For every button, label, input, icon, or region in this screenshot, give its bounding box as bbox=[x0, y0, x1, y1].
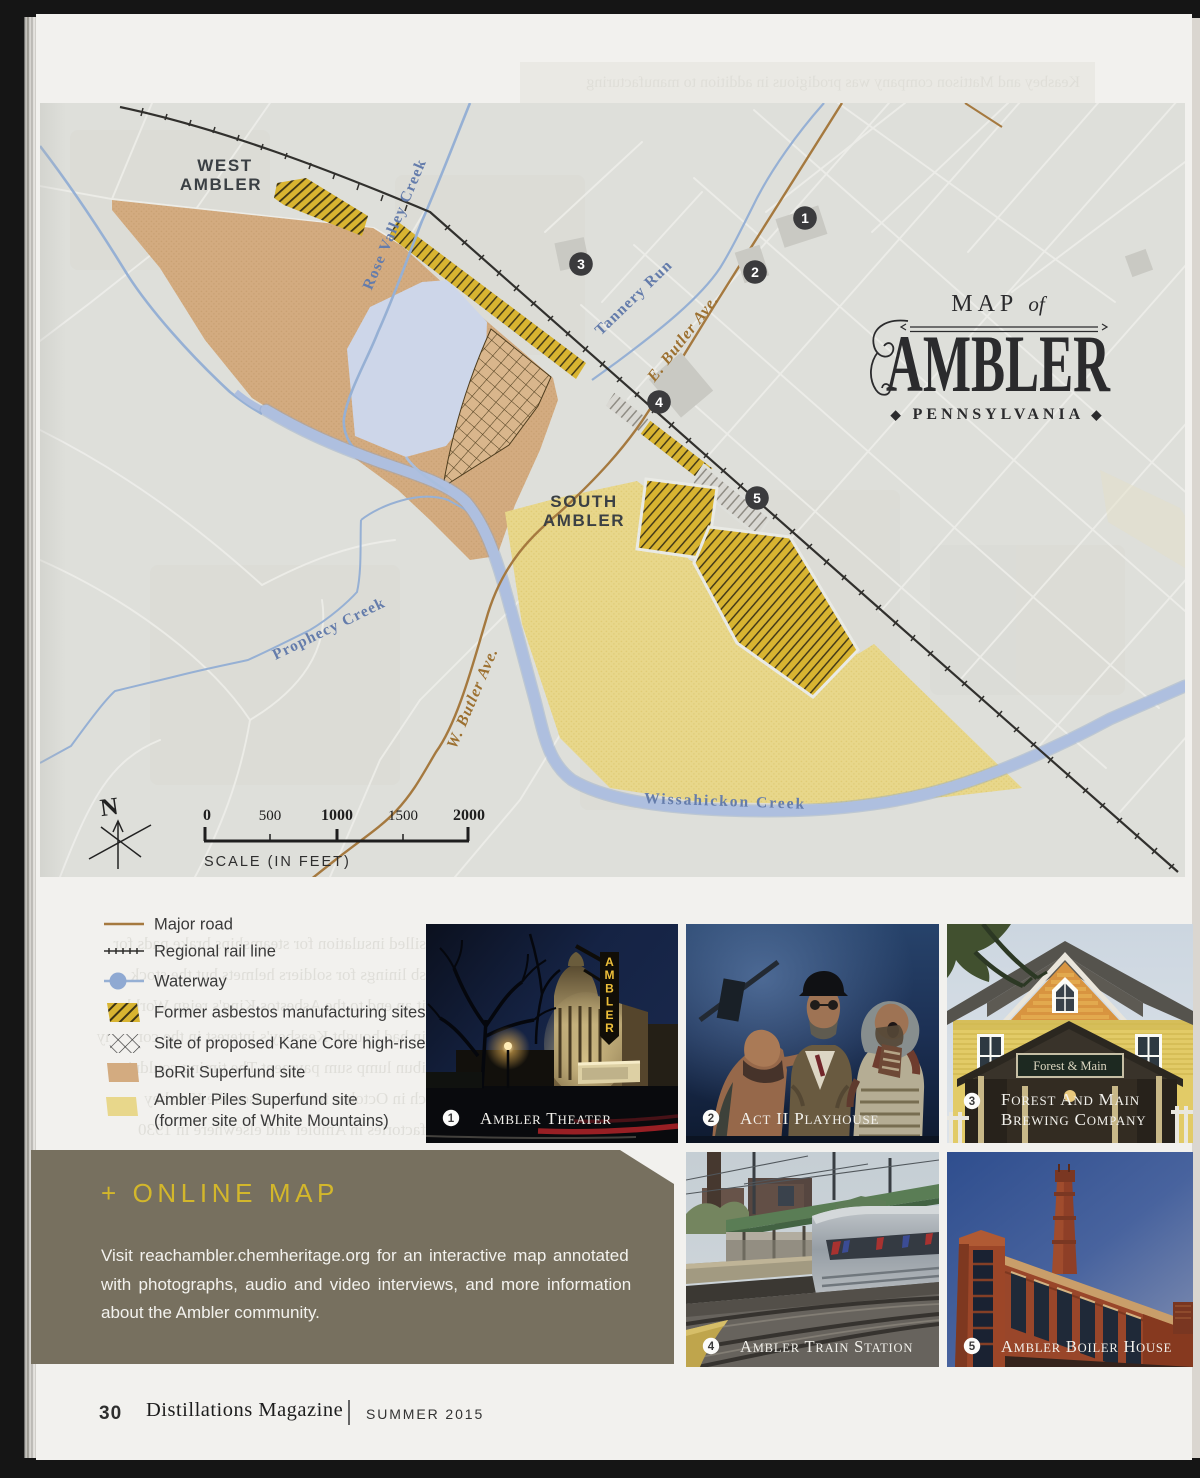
svg-text:◆ PENNSYLVANIA ◆: ◆ PENNSYLVANIA ◆ bbox=[890, 406, 1106, 423]
svg-text:FOREST AND MAIN: FOREST AND MAIN bbox=[1001, 1090, 1140, 1109]
svg-text:BoRit Superfund site: BoRit Superfund site bbox=[154, 1064, 305, 1082]
svg-text:Forest & Main: Forest & Main bbox=[1033, 1059, 1107, 1073]
svg-text:SCALE (IN FEET): SCALE (IN FEET) bbox=[204, 854, 351, 870]
svg-text:0: 0 bbox=[203, 807, 211, 824]
svg-text:B: B bbox=[605, 981, 614, 995]
svg-text:AMBLER: AMBLER bbox=[543, 511, 625, 530]
svg-text:WEST: WEST bbox=[197, 156, 253, 175]
svg-text:Regional rail line: Regional rail line bbox=[154, 943, 276, 961]
svg-text:AMBLER THEATER: AMBLER THEATER bbox=[480, 1109, 612, 1128]
svg-text:Waterway: Waterway bbox=[154, 973, 227, 991]
svg-text:5: 5 bbox=[969, 1341, 976, 1353]
svg-text:1500: 1500 bbox=[388, 808, 418, 824]
svg-text:SOUTH: SOUTH bbox=[550, 492, 618, 511]
svg-text:2: 2 bbox=[708, 1113, 714, 1125]
svg-text:5: 5 bbox=[753, 490, 761, 506]
svg-text:A: A bbox=[605, 955, 614, 969]
svg-text:MAP of: MAP of bbox=[951, 291, 1048, 317]
svg-text:Major road: Major road bbox=[154, 916, 233, 934]
svg-text:1: 1 bbox=[448, 1113, 455, 1125]
svg-text:3: 3 bbox=[969, 1096, 975, 1108]
svg-text:4: 4 bbox=[655, 394, 663, 410]
svg-text:3: 3 bbox=[577, 256, 585, 272]
svg-text:Ambler Piles Superfund site: Ambler Piles Superfund site bbox=[154, 1091, 358, 1109]
svg-text:Site of proposed Kane Core hig: Site of proposed Kane Core high-rise bbox=[154, 1035, 426, 1053]
svg-text:(former site of White Mountain: (former site of White Mountains) bbox=[154, 1112, 389, 1130]
svg-text:2000: 2000 bbox=[453, 807, 485, 824]
svg-text:BREWING COMPANY: BREWING COMPANY bbox=[1001, 1110, 1146, 1129]
svg-text:L: L bbox=[606, 995, 613, 1009]
svg-text:2: 2 bbox=[751, 264, 759, 280]
svg-text:AMBLER: AMBLER bbox=[180, 175, 262, 194]
svg-text:1: 1 bbox=[801, 210, 809, 226]
svg-text:Former asbestos manufacturing: Former asbestos manufacturing sites bbox=[154, 1004, 425, 1022]
svg-text:M: M bbox=[605, 968, 615, 982]
svg-text:E: E bbox=[605, 1008, 613, 1022]
svg-text:500: 500 bbox=[259, 808, 282, 824]
svg-text:4: 4 bbox=[708, 1341, 715, 1353]
svg-text:R: R bbox=[605, 1021, 614, 1035]
svg-text:N: N bbox=[98, 793, 120, 822]
svg-text:1000: 1000 bbox=[321, 807, 353, 824]
svg-text:ACT II PLAYHOUSE: ACT II PLAYHOUSE bbox=[740, 1109, 879, 1128]
